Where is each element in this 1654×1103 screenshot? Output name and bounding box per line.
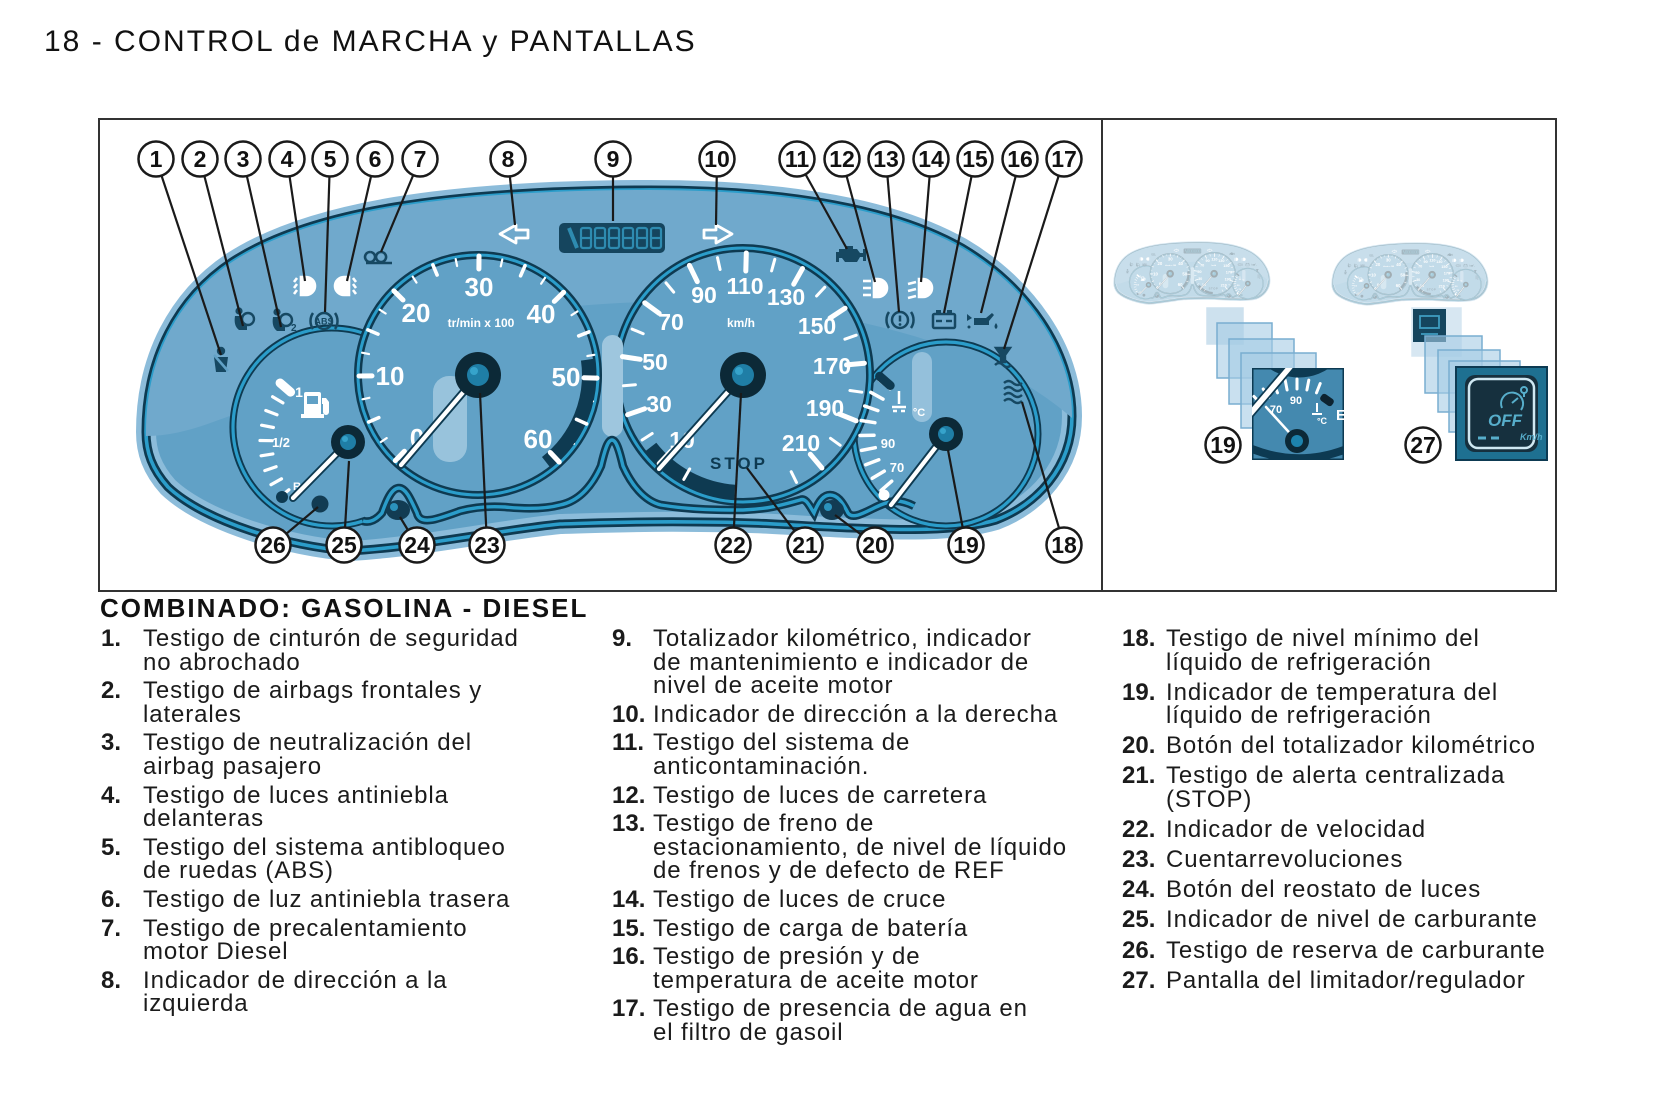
svg-text:9: 9	[607, 146, 620, 172]
svg-text:15: 15	[962, 146, 988, 172]
svg-text:13: 13	[873, 146, 899, 172]
svg-text:24: 24	[404, 532, 430, 558]
svg-text:7: 7	[414, 146, 427, 172]
svg-text:23: 23	[474, 532, 500, 558]
svg-text:70: 70	[658, 309, 684, 335]
svg-text:60: 60	[524, 424, 553, 454]
svg-text:tr/min x 100: tr/min x 100	[448, 316, 515, 330]
svg-text:26: 26	[260, 532, 286, 558]
svg-text:30: 30	[465, 272, 494, 302]
svg-text:2: 2	[291, 323, 297, 334]
svg-text:90: 90	[691, 282, 717, 308]
svg-text:50: 50	[642, 349, 668, 375]
svg-text:10: 10	[704, 146, 730, 172]
svg-text:4: 4	[281, 146, 294, 172]
svg-text:18: 18	[1051, 532, 1077, 558]
svg-text:1/2: 1/2	[272, 435, 290, 450]
svg-text:10: 10	[376, 361, 405, 391]
svg-text:90: 90	[1290, 395, 1302, 407]
svg-text:150: 150	[798, 313, 836, 339]
svg-text:20: 20	[402, 298, 431, 328]
svg-text:OFF: OFF	[1488, 411, 1523, 430]
svg-text:STOP: STOP	[710, 454, 768, 473]
svg-text:25: 25	[331, 532, 357, 558]
svg-text:27: 27	[1410, 432, 1436, 458]
svg-text:12: 12	[829, 146, 855, 172]
svg-text:19: 19	[1210, 432, 1236, 458]
svg-text:km/h: km/h	[727, 316, 755, 330]
svg-text:90: 90	[881, 436, 895, 451]
svg-text:3: 3	[237, 146, 250, 172]
svg-text:70: 70	[890, 460, 904, 475]
svg-text:°C: °C	[913, 407, 925, 419]
svg-text:21: 21	[792, 532, 818, 558]
svg-text:Km/h: Km/h	[1520, 432, 1543, 442]
svg-text:40: 40	[527, 299, 556, 329]
svg-text:2: 2	[194, 146, 207, 172]
svg-text:°C: °C	[1317, 416, 1328, 426]
svg-text:210: 210	[782, 430, 820, 456]
svg-text:30: 30	[646, 391, 672, 417]
svg-text:6: 6	[369, 146, 382, 172]
svg-text:190: 190	[806, 395, 844, 421]
svg-text:ABS: ABS	[314, 317, 333, 327]
svg-text:5: 5	[324, 146, 337, 172]
svg-text:20: 20	[862, 532, 888, 558]
svg-text:170: 170	[813, 353, 851, 379]
svg-text:16: 16	[1007, 146, 1033, 172]
svg-text:1: 1	[295, 384, 303, 400]
svg-text:19: 19	[953, 532, 979, 558]
svg-text:E: E	[1336, 407, 1346, 424]
svg-text:11: 11	[785, 146, 810, 172]
svg-text:8: 8	[502, 146, 515, 172]
svg-text:17: 17	[1051, 146, 1077, 172]
svg-text:130: 130	[767, 284, 805, 310]
svg-text:1: 1	[150, 146, 163, 172]
svg-text:50: 50	[552, 362, 581, 392]
svg-text:22: 22	[720, 532, 746, 558]
svg-text:110: 110	[726, 273, 763, 299]
svg-text:14: 14	[918, 146, 944, 172]
